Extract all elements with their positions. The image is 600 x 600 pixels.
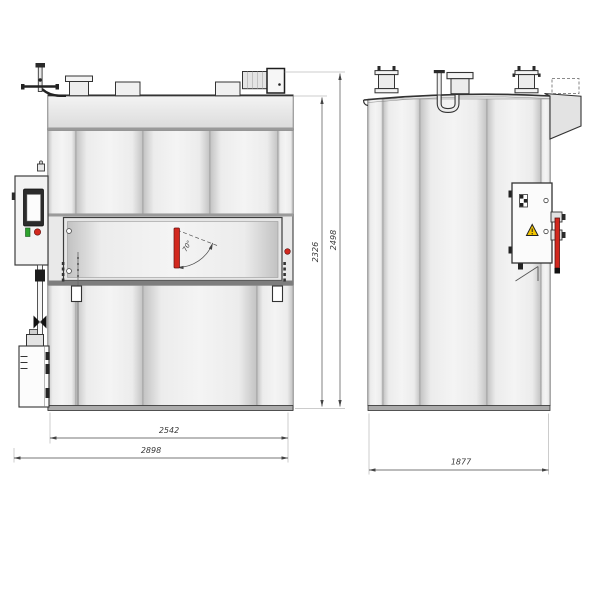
dim-label-body-height: 2326 [311,242,320,262]
dim-side-depth: 1877 [369,414,549,475]
panel [48,131,76,214]
flange [375,71,398,75]
valve-elbow-pipe [42,89,66,96]
cabinet-screw [544,229,548,233]
door-latch-left [72,286,82,302]
cabinet-foot [518,264,523,270]
chimney-neck [70,82,89,96]
stop-button [34,229,40,235]
duct-hidden-outline [552,79,579,94]
flange [375,89,398,93]
display-screen [27,195,41,222]
valve-top-cap [36,63,46,68]
front-view: 70° [12,63,293,411]
door-handle [174,228,180,268]
flanged-pipe-left [375,66,398,93]
side-bracket [38,161,45,171]
start-button [26,228,31,237]
pipe-collar [35,270,45,282]
control-panel [12,176,48,265]
flanged-pipe-right [513,66,541,93]
front-door-sill-strip [48,281,293,286]
generator-cap [30,330,38,335]
valve-nut [39,78,42,81]
generator-port [46,352,50,360]
door-latch-right [273,286,283,302]
dim-label-depth: 1877 [451,458,472,467]
motor-junction-box [267,69,285,94]
front-roof-bottom-strip [48,128,293,131]
panel [257,286,293,406]
roof-stub [116,82,141,96]
cabinet-box [512,183,552,263]
generator-motor [27,335,44,347]
vent-cap [447,73,473,79]
panel [278,131,293,214]
side-base-band [368,406,550,411]
dim-front-overall-width: 2898 [14,446,288,463]
technical-drawing-canvas: 70° [0,0,600,600]
panel [368,99,383,406]
smoke-generator [19,330,50,408]
door-lock-indicator [285,249,291,255]
port-hole [67,269,72,274]
chimney-cap [66,76,93,82]
roof-valve-assembly [21,63,66,96]
door-panel [68,222,279,278]
vent-cylinder [451,79,469,94]
smokehouse-two-view-drawing: 70° [0,0,600,600]
valve-stem [39,321,42,324]
panel [143,286,257,406]
pipe-body [519,75,535,89]
main-switch-handle [555,218,560,268]
dim-label-overall-width: 2898 [141,446,161,455]
roof-stub [216,82,241,96]
flange [515,89,538,93]
dim-front-overall-height: 2498 [285,72,346,409]
panel-mount-lug [12,193,15,201]
flange [515,71,538,75]
panel [76,286,143,406]
dim-label-inner-width: 2542 [159,426,179,435]
panel [383,99,420,406]
panel [420,99,487,406]
generator-port [46,388,50,398]
dim-label-overall-height: 2498 [329,230,338,250]
panel [143,131,210,214]
fan-motor [243,69,285,94]
roof-fittings [66,69,285,96]
generator-port [46,364,50,374]
pipe-body [379,75,395,89]
cabinet-screw [544,198,548,202]
front-roof-band [48,96,293,128]
port-hole [67,229,72,234]
rating-label [520,195,528,208]
front-base-band [48,406,293,411]
panel [210,131,278,214]
thin-pipe [437,73,441,96]
exhaust-duct [545,94,582,140]
front-upper-panels [48,131,293,214]
side-view [364,66,582,411]
panel [48,286,76,406]
front-door-header-strip [48,214,293,217]
front-lower-panels [48,286,293,406]
front-door [64,218,283,281]
motor-body [243,72,268,89]
dim-front-body-height: 2326 [294,96,328,407]
pipe-tee-cap [434,70,445,73]
dim-front-inner-width: 2542 [50,413,288,463]
panel [76,131,143,214]
